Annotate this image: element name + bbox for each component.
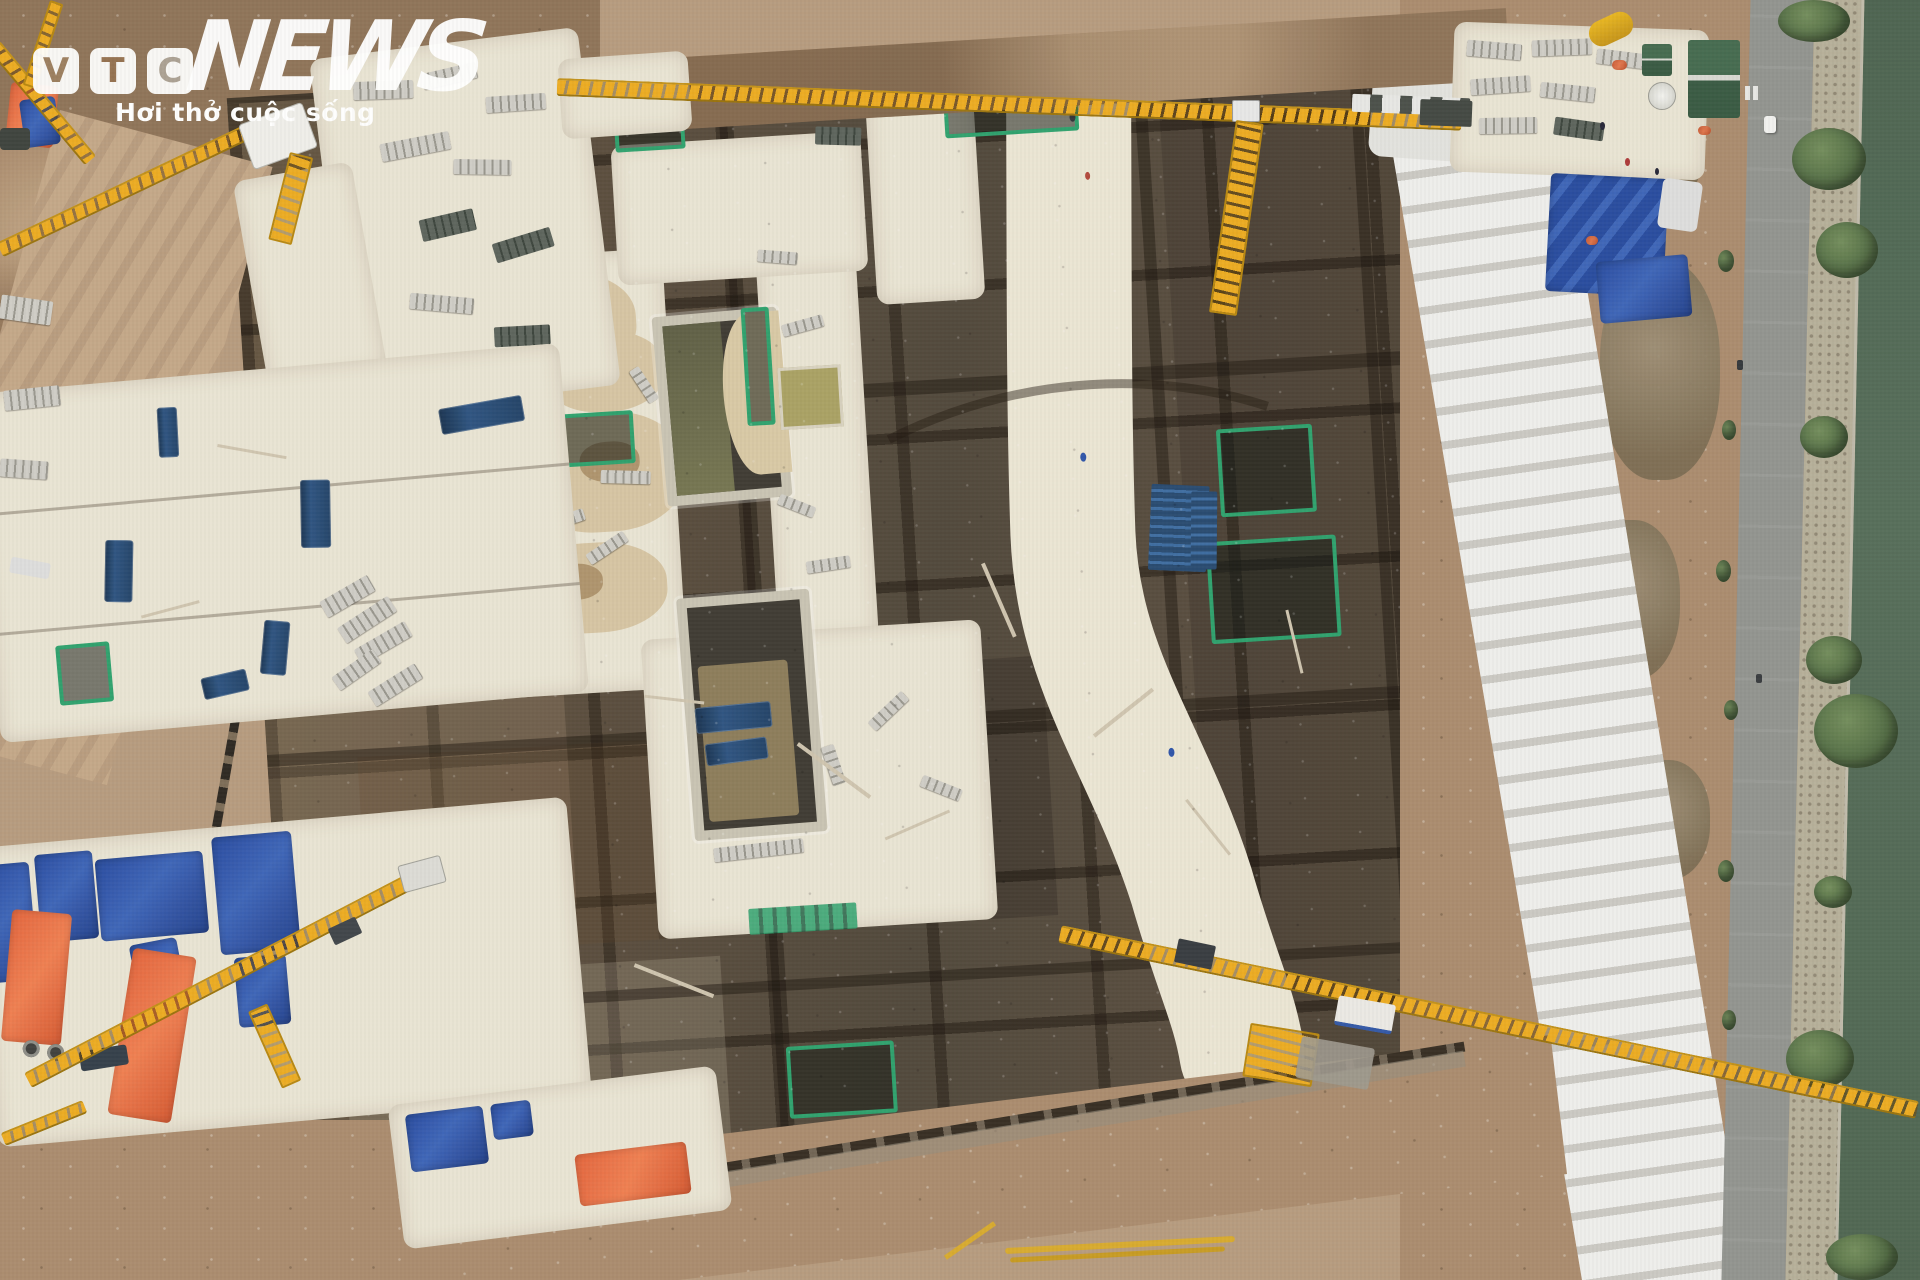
crane-jib-tip bbox=[1, 1100, 88, 1146]
crane-mast bbox=[268, 152, 313, 245]
crane-mast bbox=[1209, 120, 1264, 316]
crane-cab bbox=[1232, 100, 1260, 122]
crane-counterweight bbox=[1420, 99, 1473, 127]
logo-tagline: Hơi thở cuộc sống bbox=[115, 98, 376, 127]
logo-box-v: V bbox=[33, 48, 79, 94]
vtc-news-watermark: V T C NEWS Hơi thở cuộc sống bbox=[30, 20, 530, 150]
tower-crane-jib bbox=[557, 78, 1462, 131]
aerial-photo: V T C NEWS Hơi thở cuộc sống bbox=[0, 0, 1920, 1280]
logo-letter-t: T bbox=[101, 51, 124, 91]
tower-crane-jib bbox=[24, 865, 431, 1088]
logo-letter-v: V bbox=[43, 51, 69, 91]
crane-mast bbox=[248, 1003, 301, 1088]
cranes-layer bbox=[0, 0, 1920, 1280]
logo-letter-c: C bbox=[158, 51, 183, 91]
crane-cab bbox=[397, 855, 447, 893]
logo-box-t: T bbox=[90, 48, 136, 94]
logo-news-text: NEWS bbox=[183, 8, 485, 105]
